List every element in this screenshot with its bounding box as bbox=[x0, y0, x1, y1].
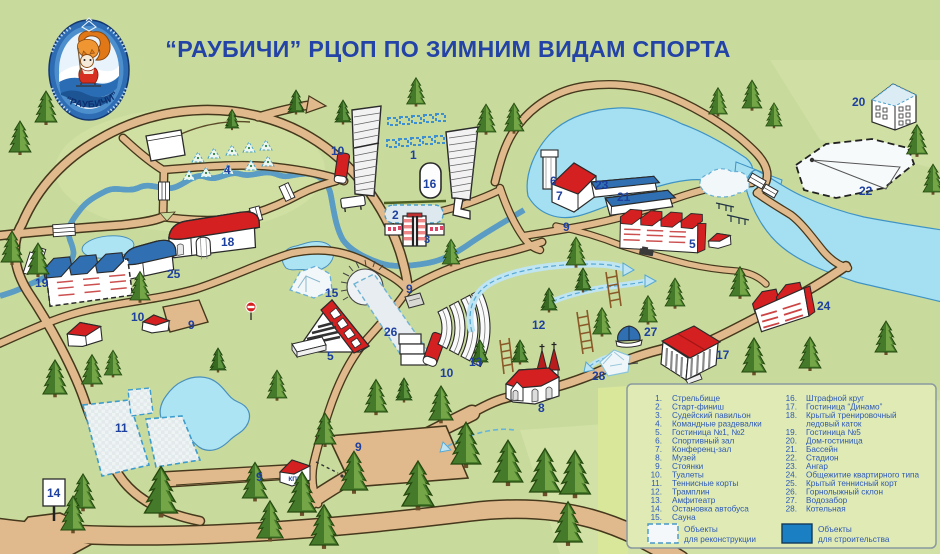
svg-text:2: 2 bbox=[392, 208, 399, 222]
svg-text:26: 26 bbox=[384, 325, 398, 339]
svg-text:9: 9 bbox=[256, 470, 263, 484]
svg-text:Котельная: Котельная bbox=[806, 505, 846, 514]
svg-text:9: 9 bbox=[188, 318, 195, 332]
svg-text:18: 18 bbox=[221, 235, 235, 249]
svg-text:25: 25 bbox=[167, 267, 181, 281]
svg-text:Сауна: Сауна bbox=[672, 513, 696, 522]
svg-text:18.: 18. bbox=[786, 411, 797, 420]
svg-text:10: 10 bbox=[331, 144, 345, 158]
svg-text:8: 8 bbox=[538, 401, 545, 415]
svg-text:7: 7 bbox=[556, 189, 563, 203]
svg-text:Объекты: Объекты bbox=[684, 525, 718, 534]
svg-text:для строительства: для строительства bbox=[818, 535, 890, 544]
svg-text:5: 5 bbox=[689, 237, 696, 251]
svg-text:“РАУБИЧИ” РЦОП ПО ЗИМНИМ ВИДАМ: “РАУБИЧИ” РЦОП ПО ЗИМНИМ ВИДАМ СПОРТА bbox=[165, 36, 730, 62]
svg-text:9: 9 bbox=[563, 220, 570, 234]
svg-text:4: 4 bbox=[224, 163, 231, 177]
svg-text:28.: 28. bbox=[786, 505, 797, 514]
svg-text:12: 12 bbox=[532, 318, 546, 332]
svg-text:14: 14 bbox=[47, 486, 61, 500]
svg-text:9: 9 bbox=[355, 440, 362, 454]
svg-text:13: 13 bbox=[469, 355, 483, 369]
svg-text:9: 9 bbox=[406, 282, 413, 296]
svg-text:19: 19 bbox=[35, 276, 49, 290]
svg-text:6: 6 bbox=[550, 174, 557, 188]
svg-text:16: 16 bbox=[423, 177, 437, 191]
svg-text:28: 28 bbox=[592, 369, 606, 383]
svg-text:15.: 15. bbox=[651, 513, 662, 522]
svg-text:5: 5 bbox=[327, 349, 334, 363]
svg-text:17: 17 bbox=[716, 348, 730, 362]
svg-text:15: 15 bbox=[325, 286, 339, 300]
svg-text:27: 27 bbox=[644, 325, 658, 339]
svg-text:3: 3 bbox=[424, 234, 430, 246]
svg-text:21: 21 bbox=[617, 190, 631, 204]
svg-text:10: 10 bbox=[440, 366, 454, 380]
svg-text:11: 11 bbox=[115, 421, 128, 435]
svg-text:1: 1 bbox=[410, 148, 417, 162]
svg-text:для реконструкции: для реконструкции bbox=[684, 535, 756, 544]
svg-text:23: 23 bbox=[595, 178, 609, 192]
svg-text:Объекты: Объекты bbox=[818, 525, 852, 534]
svg-text:24: 24 bbox=[817, 299, 831, 313]
svg-text:20: 20 bbox=[852, 95, 866, 109]
svg-text:22: 22 bbox=[859, 184, 873, 198]
svg-text:10: 10 bbox=[131, 310, 145, 324]
